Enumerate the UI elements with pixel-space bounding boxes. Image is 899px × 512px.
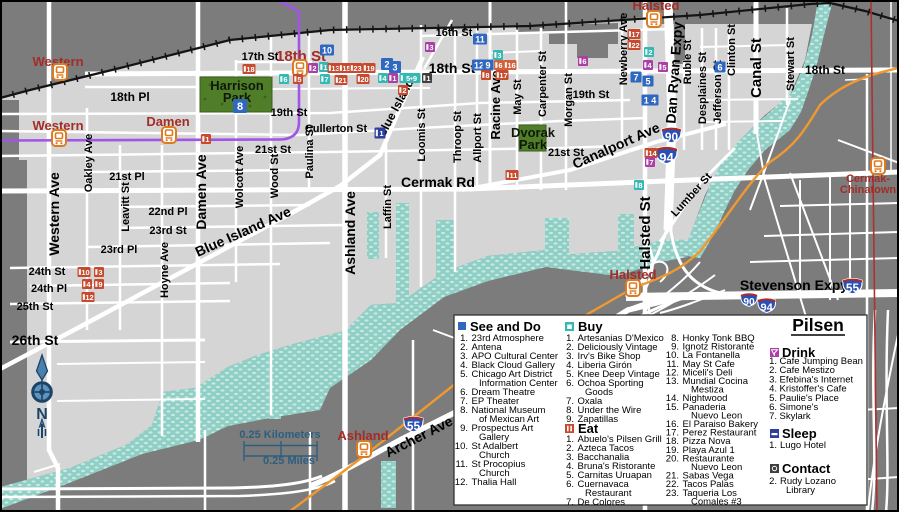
- svg-text:Loomis St: Loomis St: [416, 108, 428, 162]
- svg-text:Halsted St: Halsted St: [637, 196, 654, 269]
- svg-text:5: 5: [662, 63, 666, 72]
- svg-text:2: 2: [384, 59, 389, 69]
- svg-text:22: 22: [631, 41, 639, 50]
- svg-text:16: 16: [507, 61, 515, 70]
- svg-text:Skylark: Skylark: [780, 411, 811, 422]
- svg-text:Canal St: Canal St: [748, 38, 765, 98]
- svg-text:Stewart St: Stewart St: [785, 37, 797, 91]
- svg-text:De Colores: De Colores: [578, 497, 626, 508]
- svg-text:24th St: 24th St: [29, 266, 66, 278]
- svg-text:Allport St: Allport St: [472, 113, 484, 163]
- svg-text:5•9: 5•9: [406, 74, 417, 83]
- svg-text:7: 7: [649, 158, 653, 167]
- svg-text:18th St: 18th St: [429, 60, 476, 76]
- svg-text:1: 1: [205, 135, 209, 144]
- svg-text:14: 14: [648, 149, 657, 158]
- svg-text:Damen Ave: Damen Ave: [193, 154, 209, 229]
- svg-text:10: 10: [322, 45, 332, 55]
- svg-text:0.25 Miles: 0.25 Miles: [263, 455, 315, 467]
- svg-text:3: 3: [98, 268, 102, 277]
- svg-text:7: 7: [324, 75, 328, 84]
- svg-text:18th St: 18th St: [805, 63, 845, 77]
- svg-text:Wood St: Wood St: [269, 153, 281, 198]
- svg-text:Park: Park: [519, 137, 548, 152]
- svg-text:23rd Pl: 23rd Pl: [101, 244, 138, 256]
- svg-text:24th Pl: 24th Pl: [31, 283, 67, 295]
- svg-text:9.: 9.: [566, 414, 574, 425]
- svg-text:Thalia Hall: Thalia Hall: [472, 477, 517, 488]
- svg-text:1: 1: [323, 63, 327, 72]
- svg-text:May St: May St: [512, 79, 524, 115]
- svg-text:19th St: 19th St: [271, 107, 308, 119]
- svg-text:26th St: 26th St: [12, 332, 59, 348]
- svg-text:Buy: Buy: [578, 319, 603, 334]
- svg-text:Ashland Ave: Ashland Ave: [342, 191, 358, 275]
- svg-text:11: 11: [510, 171, 518, 180]
- svg-text:6.: 6.: [566, 378, 574, 389]
- svg-text:Zapatillas: Zapatillas: [578, 414, 619, 425]
- svg-text:3: 3: [392, 62, 397, 72]
- svg-text:7.: 7.: [566, 497, 574, 508]
- svg-text:Wolcott Ave: Wolcott Ave: [234, 146, 246, 209]
- svg-text:Stevenson Expy: Stevenson Expy: [740, 277, 848, 293]
- svg-text:Morgan St: Morgan St: [563, 73, 575, 127]
- svg-text:8.: 8.: [460, 405, 468, 416]
- svg-text:3: 3: [497, 51, 501, 60]
- svg-text:12: 12: [85, 293, 93, 302]
- svg-text:11: 11: [475, 34, 485, 44]
- svg-text:11.: 11.: [455, 459, 468, 470]
- svg-text:6: 6: [283, 75, 287, 84]
- svg-text:20: 20: [360, 75, 368, 84]
- svg-text:15.: 15.: [666, 402, 679, 413]
- svg-text:Western Ave: Western Ave: [46, 172, 62, 256]
- svg-text:10: 10: [81, 268, 89, 277]
- svg-text:9: 9: [98, 280, 102, 289]
- svg-text:Cermak Rd: Cermak Rd: [401, 174, 475, 190]
- svg-text:17th St: 17th St: [242, 51, 279, 63]
- svg-text:13.: 13.: [666, 376, 679, 387]
- svg-text:3: 3: [429, 43, 433, 52]
- svg-text:8: 8: [485, 71, 489, 80]
- svg-text:12.: 12.: [455, 477, 468, 488]
- svg-text:21: 21: [338, 76, 346, 85]
- svg-text:Racine Ave: Racine Ave: [488, 70, 503, 139]
- svg-text:15: 15: [342, 64, 350, 73]
- svg-text:19: 19: [366, 64, 374, 73]
- svg-text:Pilsen: Pilsen: [792, 315, 844, 335]
- svg-text:See and Do: See and Do: [470, 319, 541, 334]
- svg-text:10.: 10.: [455, 441, 468, 452]
- svg-text:16th St: 16th St: [436, 27, 473, 39]
- svg-text:1: 1: [426, 74, 430, 83]
- svg-text:5: 5: [297, 75, 301, 84]
- svg-text:Throop St: Throop St: [452, 111, 464, 163]
- svg-text:2: 2: [648, 48, 652, 57]
- svg-text:21st Pl: 21st Pl: [109, 171, 144, 183]
- svg-text:23.: 23.: [666, 488, 679, 499]
- svg-text:Comales #3: Comales #3: [691, 496, 742, 507]
- svg-text:1: 1: [392, 74, 396, 83]
- svg-text:2: 2: [402, 86, 406, 95]
- svg-text:5: 5: [645, 76, 650, 86]
- svg-text:2.: 2.: [769, 476, 777, 487]
- svg-text:6: 6: [498, 61, 502, 70]
- svg-text:5.: 5.: [460, 369, 468, 380]
- svg-text:Contact: Contact: [782, 461, 831, 476]
- svg-text:Carpenter St: Carpenter St: [537, 51, 549, 117]
- svg-text:20.: 20.: [666, 453, 679, 464]
- svg-text:0.25 Kilometers: 0.25 Kilometers: [239, 429, 320, 441]
- svg-text:18th Pl: 18th Pl: [110, 90, 149, 104]
- svg-text:22nd Pl: 22nd Pl: [148, 206, 187, 218]
- svg-text:Leavitt St: Leavitt St: [120, 182, 132, 232]
- svg-text:1: 1: [379, 129, 383, 138]
- svg-text:7: 7: [633, 72, 638, 82]
- svg-text:23rd St: 23rd St: [149, 225, 187, 237]
- svg-text:Laffin St: Laffin St: [382, 185, 394, 229]
- svg-text:Library: Library: [786, 485, 815, 496]
- svg-text:Clinton St: Clinton St: [726, 24, 738, 76]
- svg-text:Chinatown: Chinatown: [840, 184, 896, 196]
- svg-text:1 4: 1 4: [644, 95, 657, 105]
- svg-text:23: 23: [353, 64, 361, 73]
- svg-text:Ruble St: Ruble St: [682, 39, 694, 84]
- svg-text:Lugo Hotel: Lugo Hotel: [780, 440, 826, 451]
- svg-text:Oakley Ave: Oakley Ave: [83, 134, 95, 193]
- svg-text:Desplaines St: Desplaines St: [697, 52, 709, 124]
- svg-text:13: 13: [331, 64, 339, 73]
- svg-text:9.: 9.: [460, 423, 468, 434]
- svg-text:Paulina St: Paulina St: [304, 125, 316, 179]
- svg-text:9: 9: [485, 60, 490, 70]
- svg-text:6: 6: [582, 57, 586, 66]
- svg-text:6: 6: [717, 62, 722, 72]
- svg-text:Hoyne Ave: Hoyne Ave: [159, 242, 171, 298]
- svg-text:18: 18: [246, 65, 254, 74]
- svg-text:7.: 7.: [769, 411, 777, 422]
- svg-text:1.: 1.: [769, 440, 777, 451]
- svg-text:25th St: 25th St: [17, 301, 54, 313]
- svg-text:2: 2: [312, 64, 316, 73]
- svg-text:8: 8: [237, 101, 243, 113]
- svg-text:17: 17: [631, 30, 639, 39]
- svg-text:17: 17: [499, 71, 507, 80]
- svg-text:8: 8: [638, 181, 642, 190]
- svg-text:19th St: 19th St: [573, 89, 610, 101]
- svg-text:Sleep: Sleep: [782, 426, 817, 441]
- svg-text:6.: 6.: [566, 479, 574, 490]
